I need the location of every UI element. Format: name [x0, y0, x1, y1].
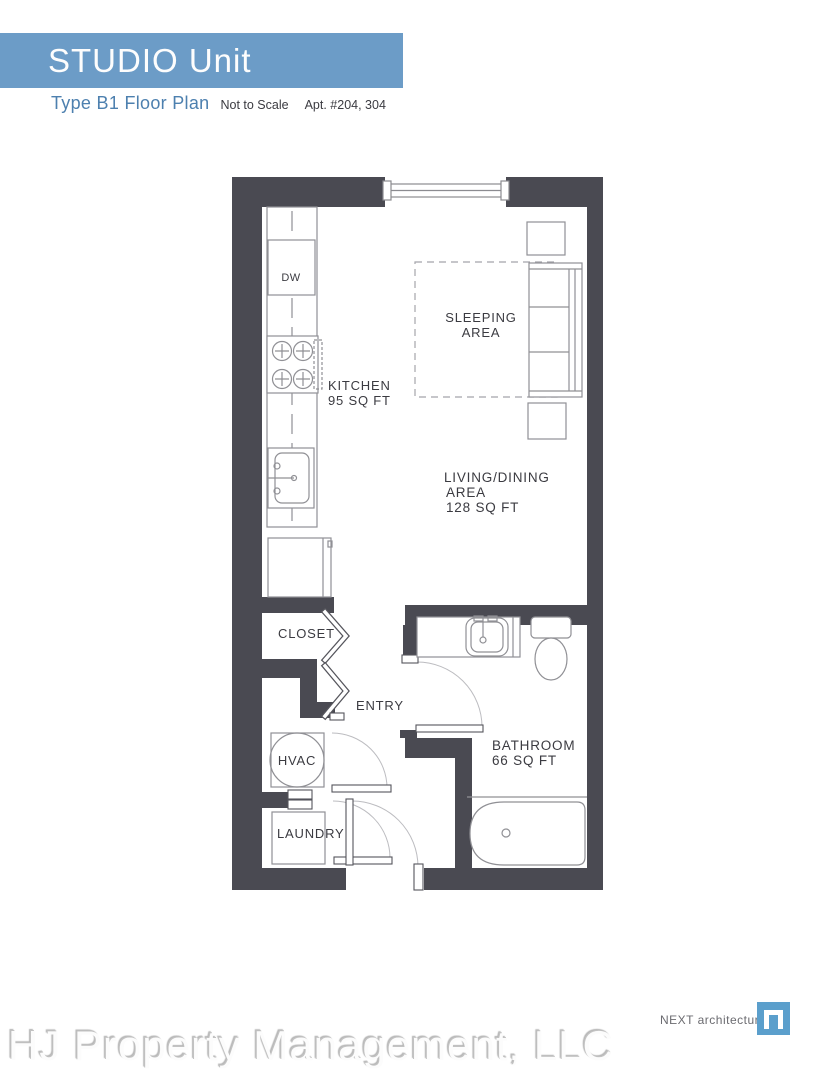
side-table-bottom: [528, 403, 566, 439]
refrigerator: [268, 538, 332, 597]
bathroom-sink: [466, 616, 508, 656]
closet-bifold-door-lower: [325, 666, 346, 716]
kitchen-fixtures: [267, 207, 332, 597]
hvac-door-leaf: [332, 785, 391, 792]
divider-jamb-lower: [288, 800, 312, 809]
bathroom-door-leaf: [416, 725, 483, 732]
bathtub: [470, 802, 585, 865]
bathroom-door-arc: [417, 662, 482, 727]
wall-right: [587, 207, 603, 890]
bathroom-door-jamb: [402, 655, 418, 663]
wall-bottom-left: [232, 868, 346, 890]
window: [383, 181, 509, 200]
bathroom-area-label: 66 SQ FT: [492, 753, 557, 768]
kitchen-area-label: 95 SQ FT: [328, 393, 391, 408]
wall-bottom-right: [424, 868, 603, 890]
sleeping-area-label-line1: SLEEPING: [445, 310, 516, 325]
floor-plan-page: STUDIO Unit Type B1 Floor Plan Not to Sc…: [0, 0, 835, 1080]
entry-door-leaf: [346, 799, 353, 865]
bathroom-label: BATHROOM: [492, 738, 575, 753]
wall-top-right: [506, 177, 603, 207]
kitchen-sink: [268, 448, 314, 508]
living-dining-area-label: 128 SQ FT: [446, 500, 519, 515]
entry-label: ENTRY: [356, 698, 404, 713]
floor-plan-drawing: DW KITCHEN 95 SQ FT SLEEPING AREA LIVING…: [0, 0, 835, 1080]
laundry-label: LAUNDRY: [277, 826, 345, 841]
window-cap-right: [501, 181, 509, 200]
hvac-door-jamb: [330, 713, 344, 720]
side-table-top: [527, 222, 565, 255]
wall-bathroom-door-stub: [403, 625, 417, 655]
dishwasher-label: DW: [281, 272, 300, 284]
living-dining-label-line1: LIVING/DINING: [444, 470, 550, 485]
hvac-label: HVAC: [278, 753, 316, 768]
stove: [267, 336, 322, 393]
living-dining-label-line2: AREA: [446, 485, 486, 500]
window-cap-left: [383, 181, 391, 200]
toilet: [531, 617, 571, 680]
sofa-bed: [529, 263, 582, 397]
closet-label: CLOSET: [278, 626, 335, 641]
entry-doorway-leaf: [414, 864, 423, 890]
dishwasher: [268, 240, 315, 295]
hvac-door-arc: [332, 733, 387, 788]
wall-bathroom-hinge-block: [400, 730, 417, 738]
wall-left: [232, 177, 262, 890]
next-logo-glyph: [764, 1010, 783, 1029]
laundry-door-leaf: [334, 857, 392, 864]
company-watermark: HJ Property Management, LLC: [8, 1022, 614, 1070]
divider-jamb-upper: [288, 790, 312, 799]
architect-credit: NEXT architecture: [660, 1013, 766, 1027]
wall-bathroom-west-vertical: [455, 752, 472, 868]
wall-hvac-laundry-divider: [262, 792, 288, 808]
sleeping-area-label-line2: AREA: [462, 325, 501, 340]
kitchen-label: KITCHEN: [328, 378, 391, 393]
next-architecture-logo-icon: [757, 1002, 790, 1035]
